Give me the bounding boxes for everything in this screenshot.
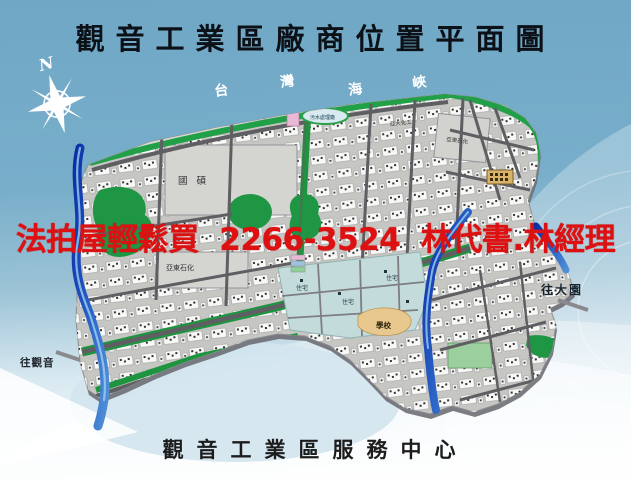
label-to-guanyin: 往觀音	[20, 356, 55, 369]
label-school: 學校	[376, 320, 391, 330]
label-guoshuo: 國碩	[178, 176, 215, 187]
yellow-building-icon	[487, 170, 513, 184]
sea-char: 峽	[411, 73, 428, 92]
sea-char: 台	[213, 81, 229, 100]
label-residential: 住宅	[296, 284, 308, 292]
label-sewage-plant: 污水處理廠	[310, 114, 335, 121]
watermark-ad-text: 法拍屋輕鬆買 2266-3524 林代書.林經理	[0, 214, 631, 259]
road-to-guanyin	[56, 352, 80, 360]
pink-block	[287, 108, 299, 126]
footer-title: 觀音工業區服務中心	[0, 434, 631, 464]
compass-rose-icon: N	[15, 47, 94, 141]
sea-char: 海	[347, 80, 363, 99]
sea-char: 灣	[279, 72, 295, 91]
label-petrochem-left: 亞東石化	[166, 263, 194, 272]
label-residential: 住宅	[342, 298, 354, 306]
page-title: 觀音工業區廠商位置平面圖	[0, 16, 631, 58]
screenshot-canvas: N	[0, 0, 631, 480]
label-residential: 住宅	[386, 274, 398, 282]
label-to-dayuan: 往大園	[541, 282, 583, 297]
sea-name: 台 灣 海 峽	[213, 72, 428, 100]
